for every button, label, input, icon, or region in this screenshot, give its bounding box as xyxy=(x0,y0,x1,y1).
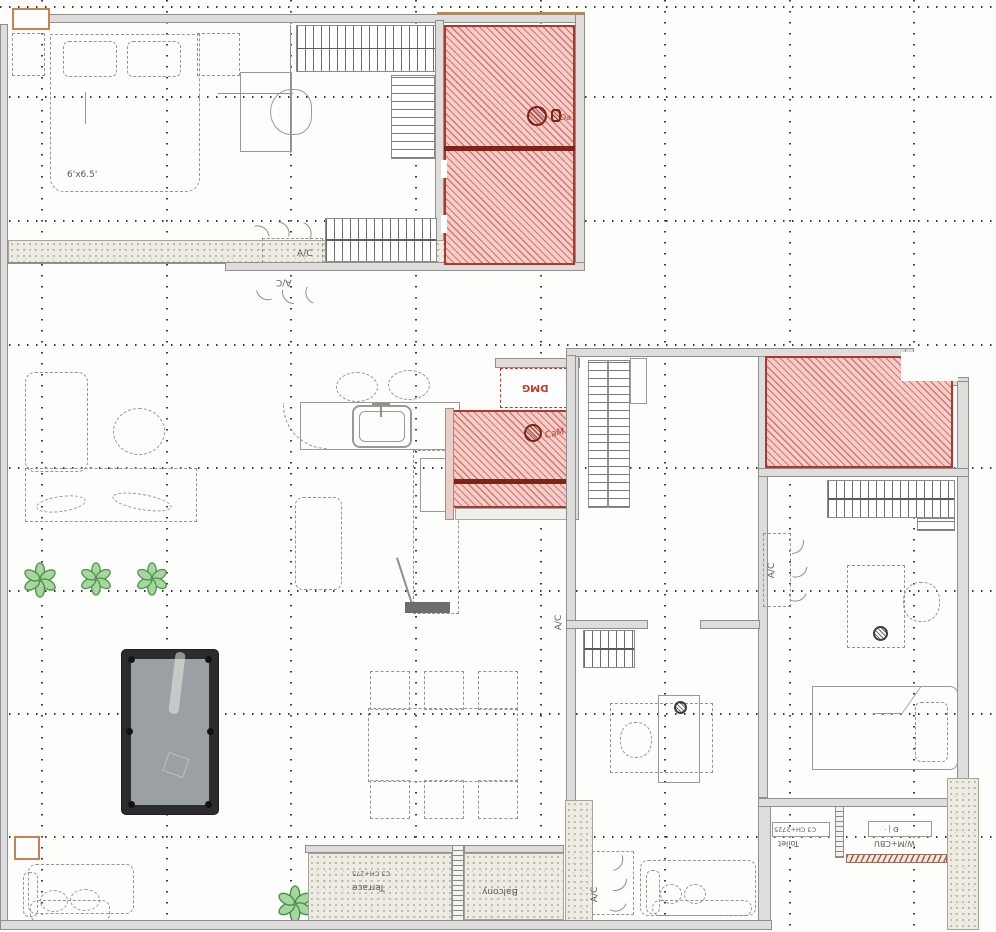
ac-label: A/C xyxy=(591,887,600,902)
balcony-label: Balcony xyxy=(482,886,518,895)
sink-basin xyxy=(359,411,405,442)
zigzag-sill xyxy=(846,854,947,863)
kitchen-island xyxy=(295,497,342,590)
pillow xyxy=(915,702,948,762)
sofa-seat xyxy=(652,900,752,916)
dining-chair xyxy=(478,671,518,710)
airflow-leaf-icon xyxy=(256,286,272,303)
stairs-post xyxy=(630,358,647,404)
grid-line xyxy=(0,344,996,346)
airflow-leaf-icon xyxy=(790,540,806,554)
airflow-leaf-icon xyxy=(277,222,290,237)
stipple-column xyxy=(947,778,979,930)
faucet-icon xyxy=(380,403,382,417)
stairs-closet xyxy=(588,360,630,508)
wall-corner-box xyxy=(12,8,50,30)
stipple-column xyxy=(565,800,593,930)
grommet-icon xyxy=(674,701,687,714)
ac-label: A/C xyxy=(297,250,312,259)
red-script-label: Da xyxy=(560,114,571,122)
sofa-seat xyxy=(30,900,110,922)
wall-thin xyxy=(8,262,225,264)
grid-line xyxy=(0,6,996,8)
airflow-leaf-icon xyxy=(793,565,808,578)
dining-table xyxy=(368,708,518,782)
red-column-icon xyxy=(524,424,542,442)
room-label: W/M+CBU xyxy=(874,839,915,847)
sofa-l-vertical xyxy=(25,372,88,472)
airflow-leaf-icon xyxy=(282,290,294,304)
pool-pocket xyxy=(128,656,135,663)
sill xyxy=(455,508,570,520)
shelf-unit xyxy=(917,518,955,531)
flower-icon xyxy=(135,562,169,596)
wall-right-outer xyxy=(957,381,969,782)
red-column-icon xyxy=(527,106,547,126)
shelf-unit xyxy=(391,75,435,159)
red-zone-divider xyxy=(452,479,570,484)
nightstand xyxy=(12,33,45,76)
ceiling-height-tag: C3 CH+2725 xyxy=(774,826,816,833)
red-zone-notch xyxy=(901,352,958,381)
pool-pocket xyxy=(207,728,214,735)
red-hatch-zone-middle xyxy=(452,410,570,508)
closet-rail xyxy=(828,498,954,499)
wall-corner-box xyxy=(14,836,40,860)
wall-left-outer xyxy=(0,24,8,930)
pool-pocket xyxy=(126,728,133,735)
pool-pocket xyxy=(128,801,135,808)
closet-hangers xyxy=(583,630,635,668)
wall-terrace-top xyxy=(305,845,453,853)
pool-table-felt xyxy=(131,659,209,805)
dining-chair xyxy=(370,671,410,710)
bar-stool xyxy=(336,372,378,402)
floor-plan: Da 6'x6.5' A/C A/C xyxy=(0,0,996,932)
closet-hangers xyxy=(827,480,955,518)
grommet-icon xyxy=(873,626,888,641)
stairs-rail xyxy=(607,360,609,508)
wall-bottom-outer xyxy=(0,920,772,930)
ac-label: A/C xyxy=(555,615,564,630)
dining-chair xyxy=(424,780,464,819)
airflow-leaf-icon xyxy=(254,223,269,240)
grid-line xyxy=(664,0,666,932)
pool-pocket xyxy=(205,801,212,808)
tag-misc: Ð | · xyxy=(884,825,898,832)
pool-pocket xyxy=(205,656,212,663)
pillow xyxy=(63,41,117,77)
hatch-strip xyxy=(835,806,844,858)
wall-unit1-right xyxy=(575,14,585,270)
dining-chair xyxy=(370,780,410,819)
terrace-tag: C3 CH+275 xyxy=(352,870,390,877)
wall-bed2-top xyxy=(758,468,969,477)
flower-icon xyxy=(79,562,113,596)
wall xyxy=(758,806,771,930)
red-hatch-zone-top xyxy=(444,25,575,265)
wall-terrace-top xyxy=(464,845,564,853)
shaft-label: DMG xyxy=(522,382,548,392)
closet-hangers xyxy=(325,218,437,262)
room-label: Toilet xyxy=(778,839,799,847)
dining-chair xyxy=(478,780,518,819)
airflow-leaf-icon xyxy=(302,286,318,303)
closet-hangers xyxy=(296,25,436,72)
grid-line xyxy=(0,836,996,838)
closet-rail xyxy=(584,648,634,649)
wall-accent xyxy=(437,12,585,14)
wall-pink xyxy=(445,408,454,520)
wall-hall-mid xyxy=(700,620,760,629)
ac-label-flipped: A/C xyxy=(276,277,291,286)
desk-chair xyxy=(903,582,940,622)
nightstand xyxy=(197,33,240,76)
cabinet-base xyxy=(405,602,450,613)
door-gap xyxy=(441,215,447,233)
wall-hall-mid xyxy=(566,620,648,629)
pillow xyxy=(127,41,181,77)
sofa-l-horizontal xyxy=(25,468,197,522)
dining-chair xyxy=(424,671,464,710)
bed-dimension-label: 6'x6.5' xyxy=(67,171,97,180)
bar-stool xyxy=(388,370,430,400)
wall-top xyxy=(28,14,585,23)
desk-chair xyxy=(270,89,312,135)
closet-rail xyxy=(297,48,435,49)
closet-rail xyxy=(326,239,436,240)
terrace-label: Terrace xyxy=(352,882,385,891)
ac-unit xyxy=(262,238,323,263)
faucet-icon xyxy=(372,403,390,405)
desk-chair xyxy=(620,722,652,758)
red-zone-divider xyxy=(444,146,575,151)
door-gap xyxy=(441,160,447,178)
hatch-strip xyxy=(452,845,464,922)
tag-box xyxy=(868,821,932,837)
flower-icon xyxy=(22,562,58,598)
coffee-table-round xyxy=(113,408,165,455)
wall-bed2-bottom xyxy=(758,798,954,807)
ac-label: A/C xyxy=(768,563,777,578)
